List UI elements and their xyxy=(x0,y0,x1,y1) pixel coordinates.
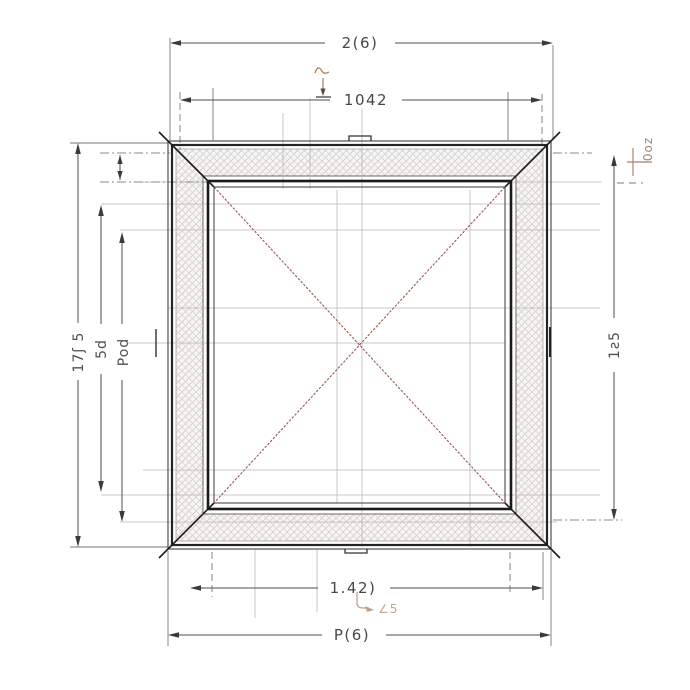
level-marker-arrow xyxy=(320,89,325,97)
dim-label-top-inner: 1042 xyxy=(344,91,388,109)
arrow-down xyxy=(75,536,81,547)
arrow-down xyxy=(119,511,125,522)
arrow-left xyxy=(170,40,181,46)
dim-label-top-outer: 2(6) xyxy=(342,34,379,52)
arrow-down xyxy=(98,481,104,492)
top-edge-tab xyxy=(349,136,371,141)
arrow-right xyxy=(542,40,553,46)
arrow-up xyxy=(611,155,617,166)
arrow-up xyxy=(75,143,81,154)
arrow-up xyxy=(119,232,125,243)
arrow-left xyxy=(180,97,191,103)
leader-arrow xyxy=(365,606,374,612)
arrow-right xyxy=(532,585,543,591)
technical-drawing-canvas: 2(6) 1042 1.42) P(6) 17ʃ 5 5d Pod 1ƨ5 0o… xyxy=(0,0,690,690)
note-label-top-right: 0oz xyxy=(641,137,655,161)
arrow-left xyxy=(168,632,179,638)
dim-label-left-inner: Pod xyxy=(116,338,132,366)
dim-label-bottom-inner: 1.42) xyxy=(330,579,377,597)
arrow-up xyxy=(98,205,104,216)
arrow-up-small xyxy=(117,155,122,164)
arrow-down xyxy=(611,509,617,520)
bottom-edge-tab xyxy=(345,549,367,553)
arrow-left xyxy=(190,585,201,591)
drawing-layer: 2(6) 1042 1.42) P(6) 17ʃ 5 5d Pod 1ƨ5 0o… xyxy=(0,0,690,690)
arrow-right xyxy=(540,632,551,638)
arrow-right xyxy=(531,97,542,103)
note-label-bottom: ∠5 xyxy=(378,602,398,616)
dim-label-bottom-outer: P(6) xyxy=(334,626,370,644)
dim-label-left-outer: 17ʃ 5 xyxy=(71,332,87,373)
level-marker-icon xyxy=(315,68,329,73)
dim-label-right: 1ƨ5 xyxy=(607,331,623,359)
arrow-down-small xyxy=(117,171,122,180)
frame-hatch-band xyxy=(176,149,543,541)
dim-label-left-mid: 5d xyxy=(94,339,110,359)
